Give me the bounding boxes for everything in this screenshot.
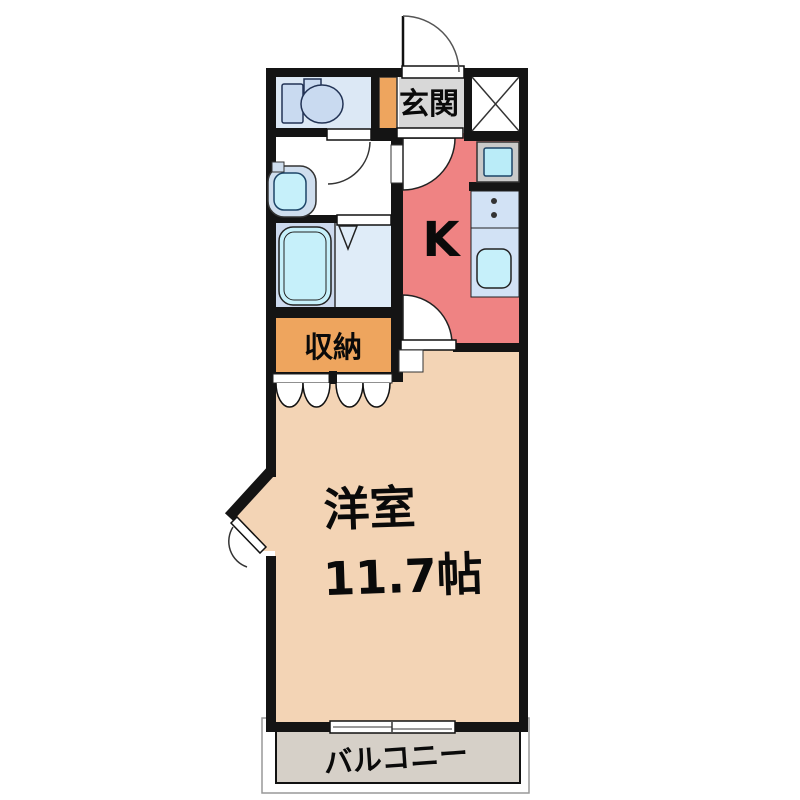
wall-kitchen-counter [469, 182, 528, 191]
wall-right [519, 68, 528, 732]
kitchen-room-door-leaf [401, 340, 456, 350]
main-room-label: 洋室 [323, 480, 417, 537]
washroom-opening [391, 145, 403, 183]
stove-burner-1 [491, 198, 497, 204]
storage-label: 収納 [304, 330, 362, 364]
wall-left-lower [266, 556, 276, 732]
genkan-label: 玄関 [399, 87, 459, 122]
toilet-door-leaf [327, 129, 371, 140]
washer-space-inner [484, 148, 512, 176]
kitchen-entry-door-leaf [397, 128, 463, 138]
bathroom-door-leaf [337, 215, 391, 225]
entry-step [379, 77, 397, 133]
storage-door-track-left [273, 374, 329, 383]
floor-plan-page: 玄関 K 収納 洋室 11.7帖 バルコニー [0, 0, 800, 800]
entrance-door-leaf [402, 66, 464, 78]
washbasin-faucet [272, 162, 284, 172]
main-room-size-label: 11.7帖 [322, 547, 483, 607]
toilet-tank [282, 84, 303, 123]
wall-kitchen-bottom [453, 343, 528, 352]
wall-bathroom-storage [266, 307, 403, 318]
washbasin-bowl [274, 173, 306, 210]
storage-door-center-post [329, 371, 337, 384]
bathtub [279, 227, 331, 305]
storage-door-track-right [336, 374, 392, 383]
toilet-bowl [301, 85, 343, 123]
floor-plan-drawing: 玄関 K 収納 洋室 11.7帖 バルコニー [0, 0, 800, 800]
wall-toilet-bottom [266, 128, 327, 137]
kitchen-room-door-jamb [399, 350, 423, 372]
stove-burner-2 [491, 212, 497, 218]
kitchen-sink [477, 249, 511, 288]
kitchen-label: K [422, 212, 461, 268]
